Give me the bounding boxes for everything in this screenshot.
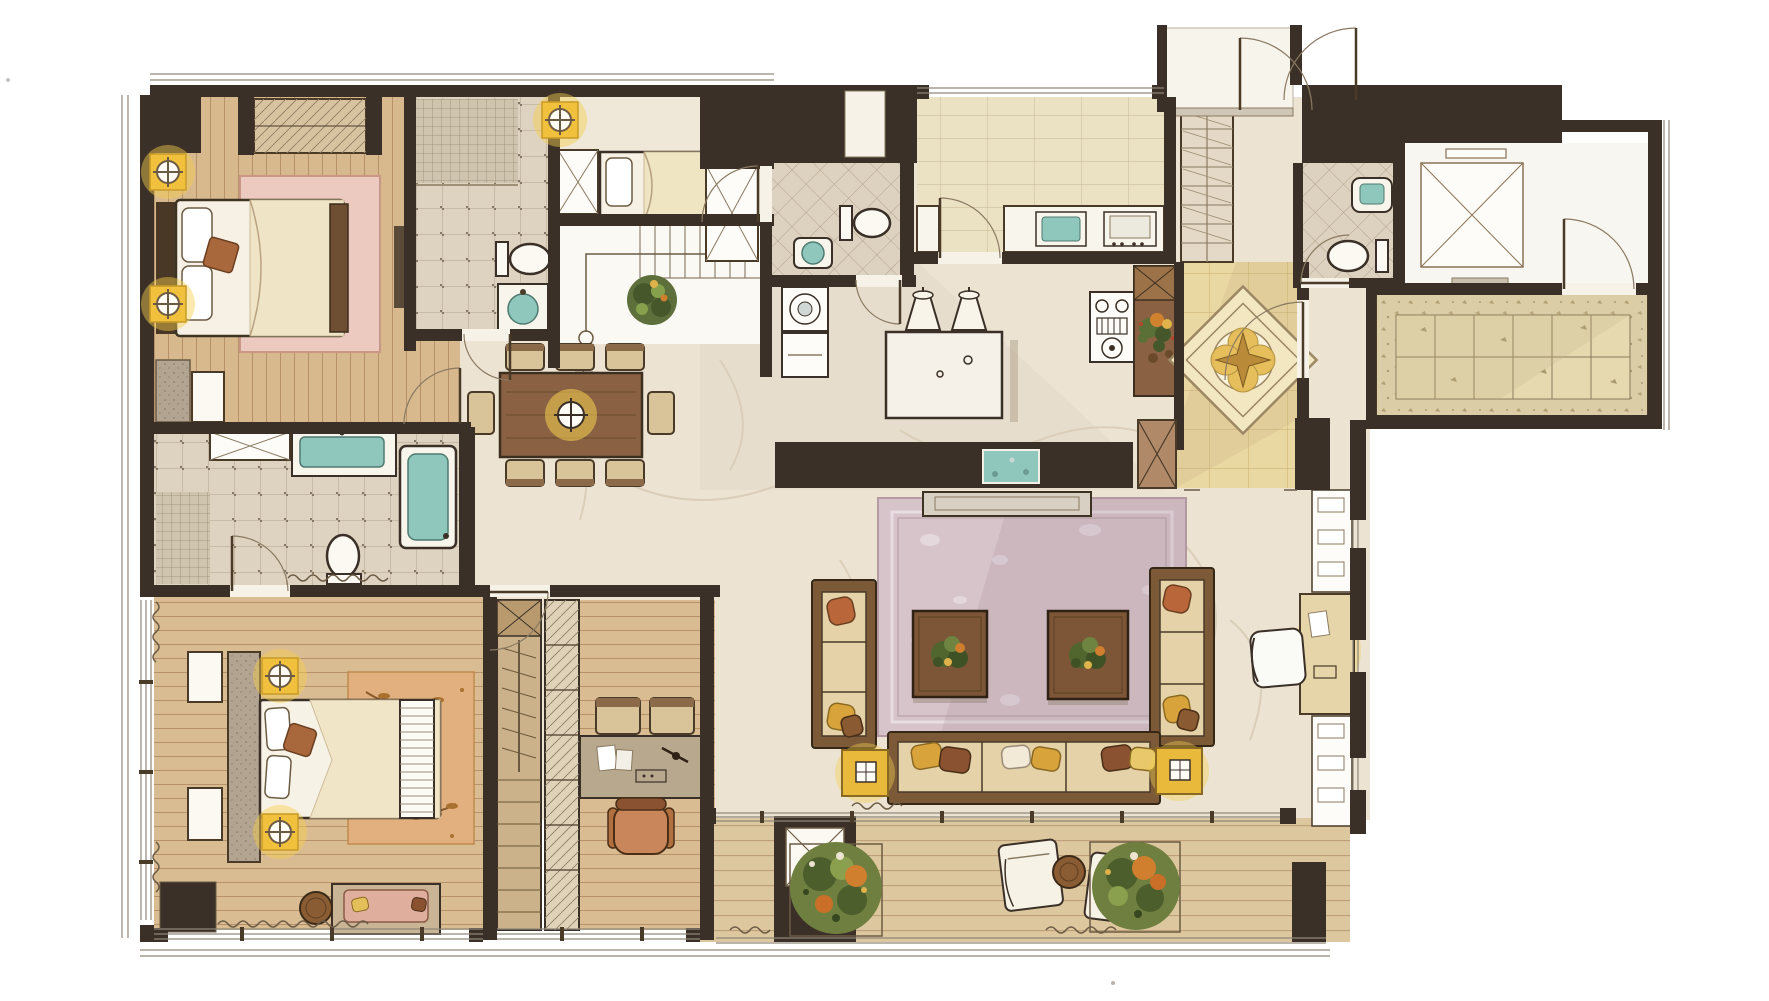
desk-chair [1250,628,1307,688]
bedroom2-closet [254,99,366,153]
bathtub [400,446,456,548]
pillow [826,596,857,627]
right-sofa [1150,568,1214,746]
tall-cabinet [706,165,758,261]
left-sofa [812,580,876,748]
vestibule-floor [1165,28,1293,112]
guest-chair [650,698,694,734]
terrace-table [1053,856,1085,888]
floor-plan-canvas: 上 [0,0,1769,1001]
entry-vestibule [1165,108,1293,116]
stair-plant [627,275,677,325]
guest-chair [596,698,640,734]
vanity-sink [292,430,396,476]
structural-column [1138,420,1176,488]
terrace-wall-block [1292,862,1326,942]
hamper [156,360,190,422]
side-table-lamp [1149,741,1209,801]
coffee-table [913,611,987,703]
long-sofa [888,732,1160,804]
plant-console [1134,266,1176,396]
shelf-unit [1312,490,1352,592]
fridge-niche [845,91,885,157]
dark-cabinet [160,882,216,932]
vanity-sink [498,284,548,334]
nightstand-lamp [253,805,307,859]
sink [794,238,832,268]
threshold [1165,108,1293,116]
mirror [394,226,404,308]
pillow [840,714,864,738]
bookcase [545,600,579,930]
floor-plan: 上 [0,0,1769,1001]
sink [1352,178,1392,212]
round-side-table [300,892,332,924]
office-chair [608,798,674,854]
ribbed-throw [400,700,434,818]
shower-mosaic [416,99,518,183]
coffee-table [1048,611,1128,705]
mosaic-shower [156,492,210,584]
bath-cabinet [210,432,290,460]
side-table-lamp [835,743,895,803]
aquarium [983,450,1039,483]
bed-end-bench [330,204,348,332]
toilet [496,242,550,276]
bedroom2-corridor-floor [404,341,460,422]
paper-speck [1111,981,1115,985]
pillow [265,755,292,799]
tv-console [923,492,1091,516]
toilet [1328,240,1388,272]
gas-stove [1090,292,1134,362]
laundry [782,287,828,377]
pillow [1176,708,1200,732]
window-bench [188,652,222,702]
shoe-cabinet [1181,110,1233,262]
pillow [1162,584,1193,615]
master-bed [260,700,440,818]
call-panel [1446,149,1506,158]
paper-speck [6,78,10,82]
nightstand-lamp [253,649,307,703]
study-desk [580,736,702,798]
window-bench [188,788,222,840]
toilet [840,206,890,240]
master-wardrobe [497,600,541,930]
pillow [606,158,632,206]
bench [192,372,224,422]
loveseat [332,884,440,934]
dining-pendant-light [545,389,597,441]
kitchen-island [886,332,1018,422]
shelf-unit [1312,716,1352,826]
